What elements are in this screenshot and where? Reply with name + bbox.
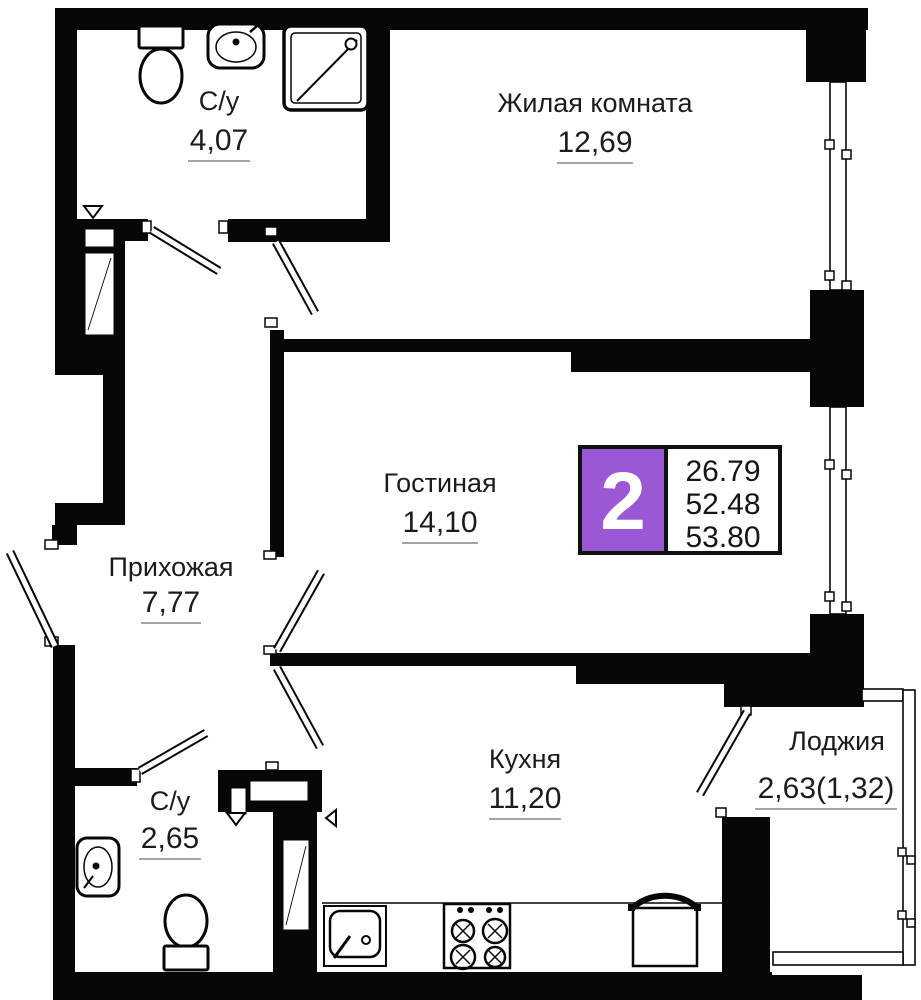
loggia-door-leaf-icon xyxy=(700,712,747,794)
sink-icon xyxy=(77,838,119,896)
room-name: Лоджия xyxy=(789,726,885,756)
bathroom-top-door-leaf-icon xyxy=(152,230,219,271)
room-area: 4,07 xyxy=(190,124,248,157)
room-area: 7,77 xyxy=(142,586,200,619)
room-label-hallway: Прихожая 7,77 xyxy=(108,552,233,623)
toilet-icon xyxy=(164,895,208,970)
room-name: С/у xyxy=(199,86,240,116)
badge-room-count: 2 xyxy=(600,456,646,547)
basin-icon xyxy=(628,896,701,966)
living-room-door-leaf-icon xyxy=(276,242,315,313)
bathroom-bottom-door-leaf-icon xyxy=(140,733,206,771)
room-area: 2,63(1,32) xyxy=(758,772,895,805)
room-label-loggia: Лоджия 2,63(1,32) xyxy=(755,726,897,809)
room-label-bathroom-top: С/у 4,07 xyxy=(188,86,250,161)
apartment-badge: 2 26.79 52.48 53.80 xyxy=(580,447,780,554)
sink-icon xyxy=(208,20,264,68)
room-label-kitchen: Кухня 11,20 xyxy=(489,744,562,819)
stove-icon xyxy=(444,904,510,969)
room-area: 2,65 xyxy=(141,822,199,855)
room-area: 14,10 xyxy=(402,506,477,539)
room-name: С/у xyxy=(150,786,191,816)
shower-icon xyxy=(284,26,368,110)
kitchen-door-leaf-icon xyxy=(277,668,320,747)
room-name: Жилая комната xyxy=(497,88,693,118)
badge-area-value: 52.48 xyxy=(685,488,760,521)
room-name: Гостиная xyxy=(383,468,496,498)
room-area: 12,69 xyxy=(557,126,632,159)
entry-door-leaf-icon xyxy=(10,552,55,646)
kitchen-sink-icon xyxy=(324,906,386,966)
room-label-lounge: Гостиная 14,10 xyxy=(383,468,496,543)
room-name: Прихожая xyxy=(108,552,233,582)
room-label-bathroom-bottom: С/у 2,65 xyxy=(139,786,201,859)
lounge-door-leaf-icon xyxy=(277,572,321,650)
room-label-living-room: Жилая комната 12,69 xyxy=(497,88,693,163)
window-icon xyxy=(825,407,851,614)
room-name: Кухня xyxy=(489,744,561,774)
floor-plan: С/у 4,07 Жилая комната 12,69 Гостиная 14… xyxy=(0,0,921,1000)
room-area: 11,20 xyxy=(489,782,562,815)
badge-area-value: 53.80 xyxy=(685,521,760,554)
window-icon xyxy=(825,82,851,290)
toilet-icon xyxy=(139,26,183,103)
badge-area-value: 26.79 xyxy=(685,455,760,488)
